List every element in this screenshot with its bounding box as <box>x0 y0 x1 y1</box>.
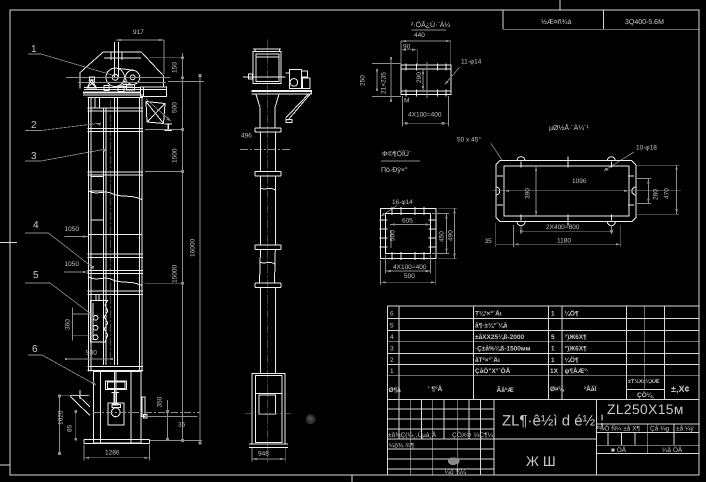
svg-text:1050: 1050 <box>65 261 80 268</box>
svg-text:3Q400-5.6M: 3Q400-5.6M <box>625 19 664 26</box>
svg-text:390: 390 <box>525 188 532 199</box>
svg-text:±Τ½Χ±¼ΧÆ: ±Τ½Χ±¼ΧÆ <box>628 379 660 385</box>
svg-text:Πò-Ðÿ×°: Πò-Ðÿ×° <box>381 166 408 174</box>
svg-text:360: 360 <box>65 319 72 330</box>
svg-text:1096: 1096 <box>572 178 587 185</box>
svg-text:1: 1 <box>390 368 394 375</box>
svg-text:16000: 16000 <box>190 239 197 257</box>
svg-text:5: 5 <box>551 334 555 341</box>
svg-text:å¶·±¼°´¼å: å¶·±¼°´¼å <box>475 322 508 330</box>
svg-text:ZL¶·ê½ì d é½¸¦: ZL¶·ê½ì d é½¸¦ <box>502 413 604 430</box>
svg-text:500: 500 <box>404 273 415 280</box>
svg-text:±,Χ¢: ±,Χ¢ <box>671 384 689 394</box>
svg-text:496: 496 <box>241 133 252 140</box>
svg-text:Ø¶å: Ø¶å <box>389 386 402 394</box>
svg-text:5: 5 <box>33 270 39 281</box>
svg-text:¼Ö¶: ¼Ö¶ <box>565 356 579 364</box>
svg-text:Τ¼²×°`Äı: Τ¼²×°`Äı <box>475 310 502 318</box>
svg-text:917: 917 <box>133 29 144 36</box>
svg-text:åΤ²×°`Äı: åΤ²×°`Äı <box>475 356 500 364</box>
svg-text:±ô¾Ç(¼·: ±ô¾Ç(¼· <box>388 432 415 439</box>
svg-text:1500: 1500 <box>172 148 179 163</box>
svg-text:1: 1 <box>551 357 555 364</box>
svg-text:1: 1 <box>31 44 37 55</box>
svg-text:500: 500 <box>390 230 397 241</box>
svg-text:280: 280 <box>653 189 660 200</box>
svg-text:15000: 15000 <box>172 265 179 283</box>
svg-text:250: 250 <box>360 75 367 86</box>
svg-text:ψ¶ÅÆ°·: ψ¶ÅÆ°· <box>565 367 589 375</box>
svg-text:1: 1 <box>551 346 555 353</box>
svg-text:¼ô ¾¼: ¼ô ¾¼ <box>445 469 467 476</box>
svg-text:6: 6 <box>32 344 38 355</box>
svg-text:11-φ14: 11-φ14 <box>461 59 482 66</box>
svg-text:¼Ö¶: ¼Ö¶ <box>565 310 579 318</box>
svg-text:ÇÖ¼¸: ÇÖ¼¸ <box>637 391 654 399</box>
svg-text:ÇåÖ"Χ°`ÖÅ: ÇåÖ"Χ°`ÖÅ <box>475 367 511 375</box>
svg-text:350: 350 <box>157 396 164 407</box>
svg-text:6: 6 <box>390 311 394 318</box>
svg-text:Çå ¼g: Çå ¼g <box>650 425 670 433</box>
svg-text:1180: 1180 <box>557 237 571 244</box>
svg-text:Ø¤¼: Ø¤¼ <box>550 386 565 393</box>
svg-text:°)Ж6Χ¶: °)Ж6Χ¶ <box>565 346 588 353</box>
svg-text:Ж Ш: Ж Ш <box>526 453 556 469</box>
svg-text:930: 930 <box>86 350 97 357</box>
svg-text:440: 440 <box>414 32 425 39</box>
svg-text:2X400=800: 2X400=800 <box>546 224 580 231</box>
svg-text:ÇÖΧΦ: ÇÖΧΦ <box>452 431 471 439</box>
svg-text:°)Ж6Χ¶: °)Ж6Χ¶ <box>565 334 588 341</box>
svg-text:4X100=400: 4X100=400 <box>393 264 427 271</box>
svg-text:5: 5 <box>390 323 394 330</box>
svg-text:35: 35 <box>485 238 493 245</box>
svg-text:±åΧΧ25¼ß-2000: ±åΧΧ25¼ß-2000 <box>475 333 524 341</box>
svg-text:4: 4 <box>33 220 39 231</box>
svg-text:±å ¼ÿ: ±å ¼ÿ <box>676 425 694 433</box>
svg-text:¼Ç¶¼: ¼Ç¶¼ <box>474 432 494 439</box>
svg-text:²·ÖÃ¿Ú·¨À¼: ²·ÖÃ¿Ú·¨À¼ <box>411 20 450 29</box>
svg-text:50 x 45°: 50 x 45° <box>457 137 481 144</box>
svg-text:2: 2 <box>390 357 394 364</box>
svg-text:Φ©¶ÓÏÜ´: Φ©¶ÓÏÜ´ <box>382 149 411 158</box>
svg-text:' ¶°Å: ' ¶°Å <box>428 385 443 393</box>
svg-text:150: 150 <box>172 62 179 73</box>
svg-text:¼Ö Ñ¼ ±å Χ¶: ¼Ö Ñ¼ ±å Χ¶ <box>599 425 641 433</box>
svg-text:¼ô¾ ¾¶: ¼ô¾ ¾¶ <box>389 443 415 450</box>
svg-text:1: 1 <box>551 311 555 318</box>
svg-text:3: 3 <box>390 346 394 353</box>
svg-text:1050: 1050 <box>65 226 80 233</box>
svg-text:1Χ: 1Χ <box>550 368 559 375</box>
svg-text:½Æ¤ñ¾à: ½Æ¤ñ¾à <box>541 18 571 26</box>
svg-text:¼å ÖÅ: ¼å ÖÅ <box>662 446 683 454</box>
svg-text:35: 35 <box>178 421 186 428</box>
svg-text:605: 605 <box>402 218 413 225</box>
svg-text:4X100=400: 4X100=400 <box>408 112 442 119</box>
svg-text:21×235: 21×235 <box>380 72 387 94</box>
svg-text:µØ½Å·¨À¼´¹: µØ½Å·¨À¼´¹ <box>549 123 589 132</box>
svg-text:450: 450 <box>439 231 446 242</box>
svg-text:■ ÖÅ: ■ ÖÅ <box>611 446 627 454</box>
svg-text:470: 470 <box>664 188 671 199</box>
svg-text:85: 85 <box>67 424 74 432</box>
svg-text:500: 500 <box>172 102 179 113</box>
svg-text:2: 2 <box>31 120 37 131</box>
svg-text:M: M <box>404 98 409 105</box>
svg-text:1620: 1620 <box>58 410 65 425</box>
svg-text:16-φ14: 16-φ14 <box>392 199 413 206</box>
svg-text:ÃåªÆ: ÃåªÆ <box>497 386 515 394</box>
svg-text:4: 4 <box>390 334 394 341</box>
svg-text:1286: 1286 <box>105 450 120 457</box>
svg-text:490: 490 <box>448 230 455 241</box>
svg-text:¸,Üµà¸Å: ¸,Üµà¸Å <box>414 431 437 439</box>
svg-text:·Ç±å%¼ß-1500мм: ·Ç±å%¼ß-1500мм <box>475 345 531 353</box>
svg-text:3: 3 <box>31 151 37 162</box>
svg-text:948: 948 <box>258 451 269 458</box>
svg-text:ZL250X15м: ZL250X15м <box>607 402 684 417</box>
svg-text:²ÅåÏ: ²ÅåÏ <box>584 385 596 393</box>
svg-text:10-φ18: 10-φ18 <box>636 145 657 152</box>
